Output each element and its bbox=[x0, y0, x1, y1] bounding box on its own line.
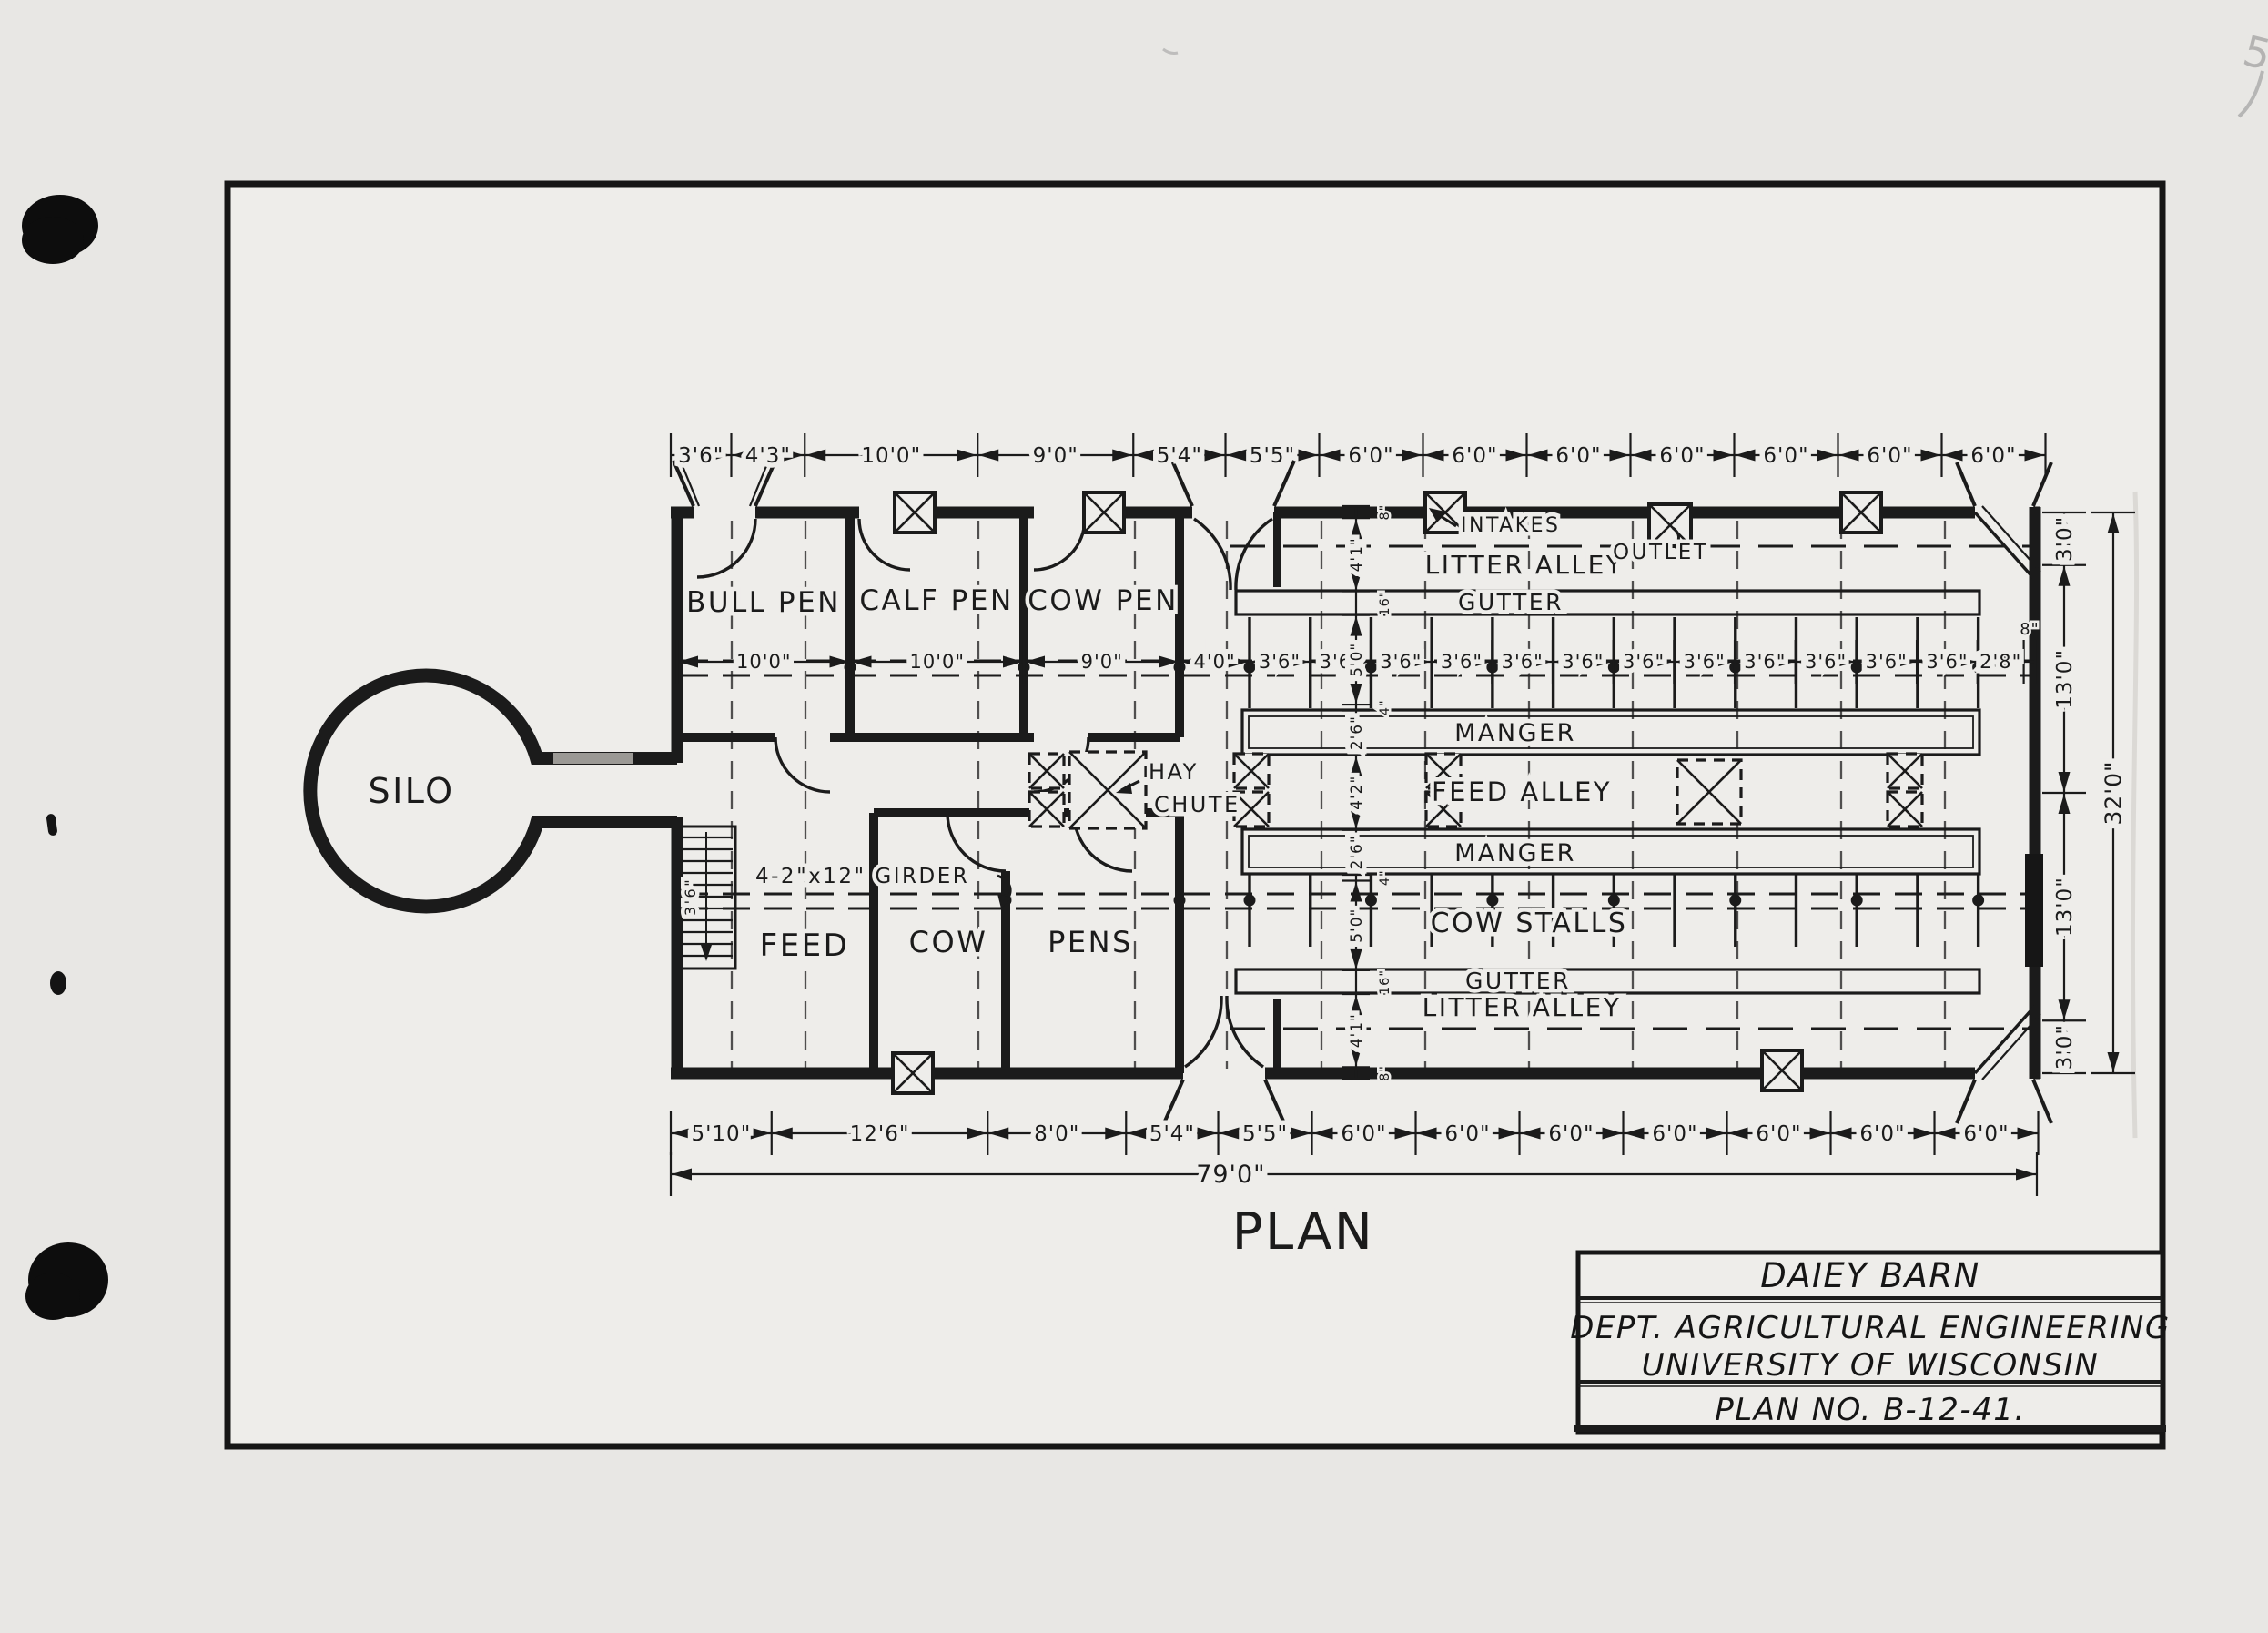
dimension-label: 5'10" bbox=[691, 1122, 751, 1146]
annotation-intakes: INTAKES bbox=[1461, 514, 1561, 537]
dimension-label: 5'4" bbox=[1157, 444, 1202, 468]
area-label-manger-bottom: MANGER bbox=[1454, 839, 1576, 867]
dimension-label: 6'0" bbox=[1756, 1122, 1801, 1146]
area-label-litter-alley-top: LITTER ALLEY bbox=[1425, 550, 1625, 580]
area-label-litter-alley-bottom: LITTER ALLEY bbox=[1423, 992, 1622, 1022]
pencil-marks: 5 bbox=[1163, 25, 2268, 117]
annotation-outlet: OUTLET bbox=[1613, 541, 1708, 564]
dimension-label: 10'0" bbox=[909, 651, 965, 673]
right-wall-thick-block bbox=[2025, 854, 2043, 967]
dimension-label: 2'8" bbox=[1979, 651, 2021, 673]
dimension-label: 5'5" bbox=[1242, 1122, 1288, 1146]
dimension-label: 2'6" bbox=[1348, 835, 1366, 869]
room-label-cow-pen: COW PEN bbox=[1028, 584, 1179, 617]
dimension-label: 3'6" bbox=[1623, 651, 1665, 673]
dimension-label: 2'6" bbox=[1348, 715, 1366, 750]
dimension-label: 6'0" bbox=[1659, 444, 1705, 468]
dimension-label: 4'3" bbox=[745, 444, 791, 468]
dimension-label: 3'6" bbox=[1926, 651, 1968, 673]
dimension-label: 3'6" bbox=[1684, 651, 1726, 673]
post-dot bbox=[1244, 895, 1256, 907]
dimension-label: 5'0" bbox=[1348, 643, 1366, 677]
dimension-label: 3'0" bbox=[2053, 516, 2077, 562]
dimension-label: 6'0" bbox=[1452, 444, 1497, 468]
stair-width-label: 3'6" bbox=[682, 877, 699, 916]
dimension-label: 3'6" bbox=[1441, 651, 1483, 673]
chute-door-mark bbox=[553, 753, 633, 764]
dimension-label: 4" bbox=[1378, 869, 1392, 886]
room-label-silo: SILO bbox=[368, 771, 454, 811]
dimension-label: 6'0" bbox=[1963, 1122, 2009, 1146]
post-dot bbox=[1972, 895, 1984, 907]
dimension-label: 10'0" bbox=[736, 651, 792, 673]
dairy-barn-plan-drawing: 5 bbox=[0, 0, 2268, 1633]
area-label-gutter-bottom: GUTTER bbox=[1465, 968, 1571, 994]
title-block: DAIEY BARN DEPT. AGRICULTURAL ENGINEERIN… bbox=[1570, 1253, 2170, 1432]
title-block-title: DAIEY BARN bbox=[1760, 1256, 1980, 1295]
dimension-label: 4'2" bbox=[1348, 776, 1366, 810]
area-label-manger-top: MANGER bbox=[1454, 719, 1576, 747]
dimension-label: 6'0" bbox=[1859, 1122, 1905, 1146]
post-dot bbox=[1174, 895, 1186, 907]
dimension-label: 3'6" bbox=[1744, 651, 1786, 673]
dimension-label: 6'0" bbox=[1341, 1122, 1386, 1146]
post-dot bbox=[1851, 895, 1863, 907]
dimension-label: 8'0" bbox=[1034, 1122, 1079, 1146]
dimension-label: 6'0" bbox=[1970, 444, 2016, 468]
dimension-label: 13'0" bbox=[2053, 877, 2077, 937]
room-label-cow-pens-left: COW bbox=[909, 925, 988, 959]
dimension-label: 5'4" bbox=[1149, 1122, 1195, 1146]
dimension-label: 4" bbox=[1378, 699, 1392, 715]
dimension-label: 3'6" bbox=[678, 444, 724, 468]
dimension-label: 3'0" bbox=[2053, 1024, 2077, 1070]
dimension-label: 6'0" bbox=[1348, 444, 1393, 468]
area-label-feed-alley: FEED ALLEY bbox=[1432, 776, 1612, 807]
dimension-label: 3'6" bbox=[1866, 651, 1908, 673]
dimension-label: 32'0" bbox=[2101, 760, 2127, 825]
post-dot bbox=[1365, 895, 1377, 907]
dimension-label: 4'1" bbox=[1348, 1013, 1366, 1048]
annotation-hay: HAY bbox=[1149, 759, 1199, 785]
dimension-label: 6'0" bbox=[1652, 1122, 1697, 1146]
annotation-girder: 4-2"x12" GIRDER bbox=[755, 865, 969, 888]
post-dot bbox=[1486, 895, 1498, 907]
dimension-label: 6'0" bbox=[1763, 444, 1808, 468]
scanned-blueprint-page: 5 bbox=[0, 0, 2268, 1633]
dimension-label: 79'0" bbox=[1196, 1161, 1265, 1189]
dimension-label: 3'6" bbox=[1805, 651, 1847, 673]
dimension-label: 13'0" bbox=[2053, 649, 2077, 709]
dimension-label: 6'0" bbox=[1444, 1122, 1490, 1146]
drawing-caption: PLAN bbox=[1232, 1202, 1374, 1262]
dimension-label: 16" bbox=[1378, 591, 1392, 616]
dimension-label: 5'0" bbox=[1348, 908, 1366, 943]
dimension-label: 8" bbox=[2020, 620, 2040, 639]
dimension-label: 3'6" bbox=[1562, 651, 1604, 673]
dimension-label: 6'0" bbox=[1548, 1122, 1594, 1146]
dimension-label: 8" bbox=[1378, 1065, 1392, 1081]
dimension-label: 16" bbox=[1378, 969, 1392, 995]
dimension-label: 6'0" bbox=[1867, 444, 1912, 468]
dimension-label: 4'0" bbox=[1193, 651, 1235, 673]
title-block-plan-no: PLAN NO. B-12-41. bbox=[1715, 1392, 2025, 1428]
dimension-label: 3'6" bbox=[1259, 651, 1301, 673]
area-label-cow-stalls: COW STALLS bbox=[1431, 908, 1628, 939]
dimension-label: 8" bbox=[1378, 504, 1392, 521]
dimension-label: 12'6" bbox=[850, 1122, 910, 1146]
area-label-gutter-top: GUTTER bbox=[1458, 589, 1564, 615]
dimension-label: 4'1" bbox=[1348, 537, 1366, 572]
title-block-department: DEPT. AGRICULTURAL ENGINEERING bbox=[1570, 1310, 2170, 1346]
dimension-label: 6'0" bbox=[1555, 444, 1601, 468]
dimension-label: 10'0" bbox=[861, 444, 921, 468]
room-label-feed: FEED bbox=[760, 928, 850, 964]
dimension-label: 3'6" bbox=[1502, 651, 1544, 673]
title-block-institution: UNIVERSITY OF WISCONSIN bbox=[1642, 1347, 2100, 1384]
post-dot bbox=[1729, 895, 1741, 907]
annotation-chute: CHUTE bbox=[1154, 792, 1240, 817]
room-label-cow-pens-right: PENS bbox=[1048, 925, 1133, 959]
room-label-calf-pen: CALF PEN bbox=[859, 584, 1013, 617]
post-dot bbox=[1608, 895, 1620, 907]
dimension-label: 3'6" bbox=[1380, 651, 1422, 673]
punch-holes bbox=[22, 195, 108, 1320]
dimension-label: 9'0" bbox=[1033, 444, 1078, 468]
room-label-bull-pen: BULL PEN bbox=[686, 586, 841, 619]
dimension-label: 5'5" bbox=[1250, 444, 1295, 468]
dimension-label: 9'0" bbox=[1081, 651, 1123, 673]
